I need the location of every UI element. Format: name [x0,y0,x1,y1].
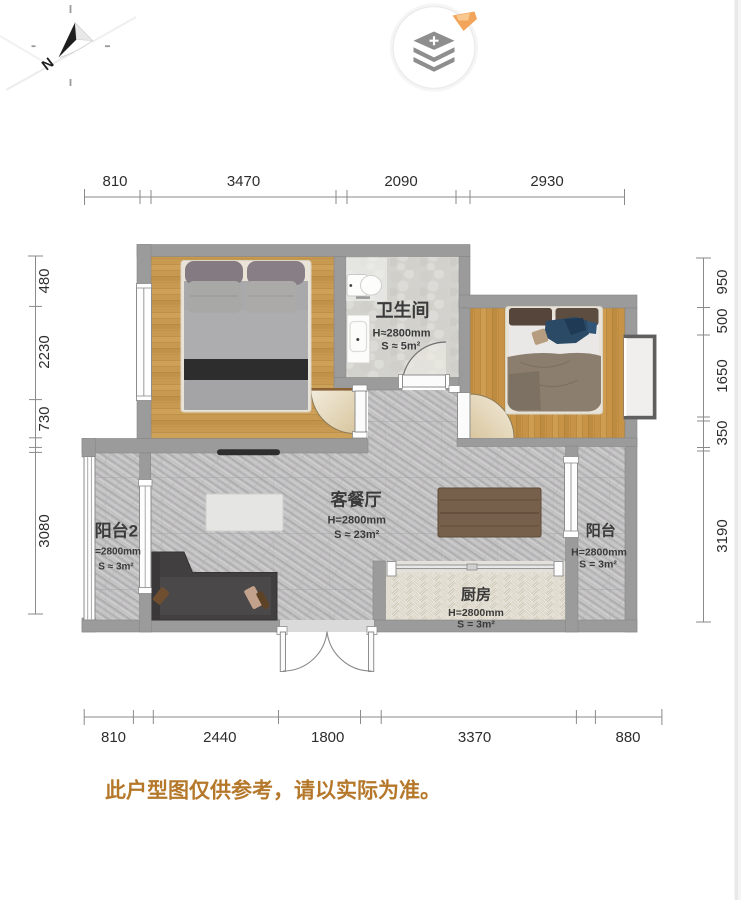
svg-text:H=2800mm: H=2800mm [327,515,386,527]
svg-text:350: 350 [714,420,731,445]
svg-text:3190: 3190 [714,519,731,552]
svg-text:950: 950 [714,269,731,294]
svg-text:S ≈ 3m²: S ≈ 3m² [98,562,134,573]
svg-text:2090: 2090 [384,173,417,190]
svg-text:3080: 3080 [36,514,53,547]
svg-text:厨房: 厨房 [461,586,491,604]
svg-text:480: 480 [36,268,53,293]
svg-text:此户型图仅供参考，请以实际为准。: 此户型图仅供参考，请以实际为准。 [105,779,441,803]
svg-text:810: 810 [101,729,126,746]
svg-text:阳台: 阳台 [586,522,616,540]
svg-text:客餐厅: 客餐厅 [330,490,382,510]
svg-text:S ≈ 5m²: S ≈ 5m² [381,341,420,353]
svg-text:500: 500 [714,308,731,333]
svg-text:H=2800mm: H=2800mm [571,547,627,559]
svg-text:H≈2800mm: H≈2800mm [372,328,430,340]
svg-text:S ≈ 23m²: S ≈ 23m² [334,529,380,541]
svg-text:S = 3m²: S = 3m² [579,559,617,571]
svg-text:1650: 1650 [714,359,731,392]
svg-text:1800: 1800 [311,729,344,746]
svg-text:卫生间: 卫生间 [376,300,430,321]
svg-text:H=2800mm: H=2800mm [448,607,504,619]
svg-text:3370: 3370 [458,729,491,746]
svg-text:2930: 2930 [530,173,563,190]
svg-text:730: 730 [36,406,53,431]
svg-text:2440: 2440 [203,729,236,746]
svg-text:880: 880 [615,729,640,746]
svg-text:810: 810 [102,173,127,190]
svg-text:S = 3m²: S = 3m² [457,619,495,631]
svg-text:2230: 2230 [36,335,53,368]
svg-text:阳台2: 阳台2 [95,521,138,541]
svg-text:3470: 3470 [227,173,260,190]
svg-text:=2800mm: =2800mm [95,547,141,558]
